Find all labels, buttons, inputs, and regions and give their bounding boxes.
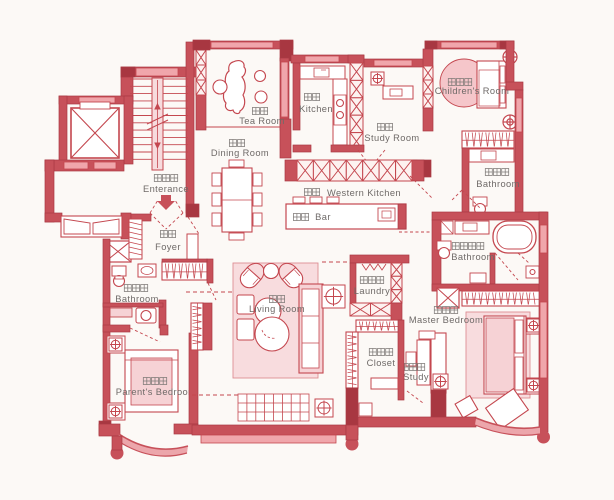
svg-text:Western Kitchen: Western Kitchen [327,188,401,198]
svg-text:Living Room: Living Room [249,304,305,314]
svg-text:Parent's Bedroom: Parent's Bedroom [116,387,197,397]
svg-text:Bar: Bar [315,212,331,222]
svg-text:Tea Room: Tea Room [239,116,285,126]
svg-text:Dining Room: Dining Room [211,148,269,158]
svg-text:Foyer: Foyer [155,242,181,252]
svg-text:Closet: Closet [367,358,396,368]
svg-text:Bathroom: Bathroom [451,252,495,262]
svg-text:Study: Study [403,372,429,382]
svg-text:Children's Room: Children's Room [435,86,509,96]
svg-text:Master Bedroom: Master Bedroom [409,315,483,325]
svg-text:Study Room: Study Room [364,133,419,143]
svg-text:Bathroom: Bathroom [476,179,520,189]
svg-text:Enterance: Enterance [143,184,189,194]
svg-text:Kitchen: Kitchen [299,104,333,114]
svg-text:Laundry: Laundry [354,286,390,296]
svg-text:Bathroom: Bathroom [115,294,159,304]
